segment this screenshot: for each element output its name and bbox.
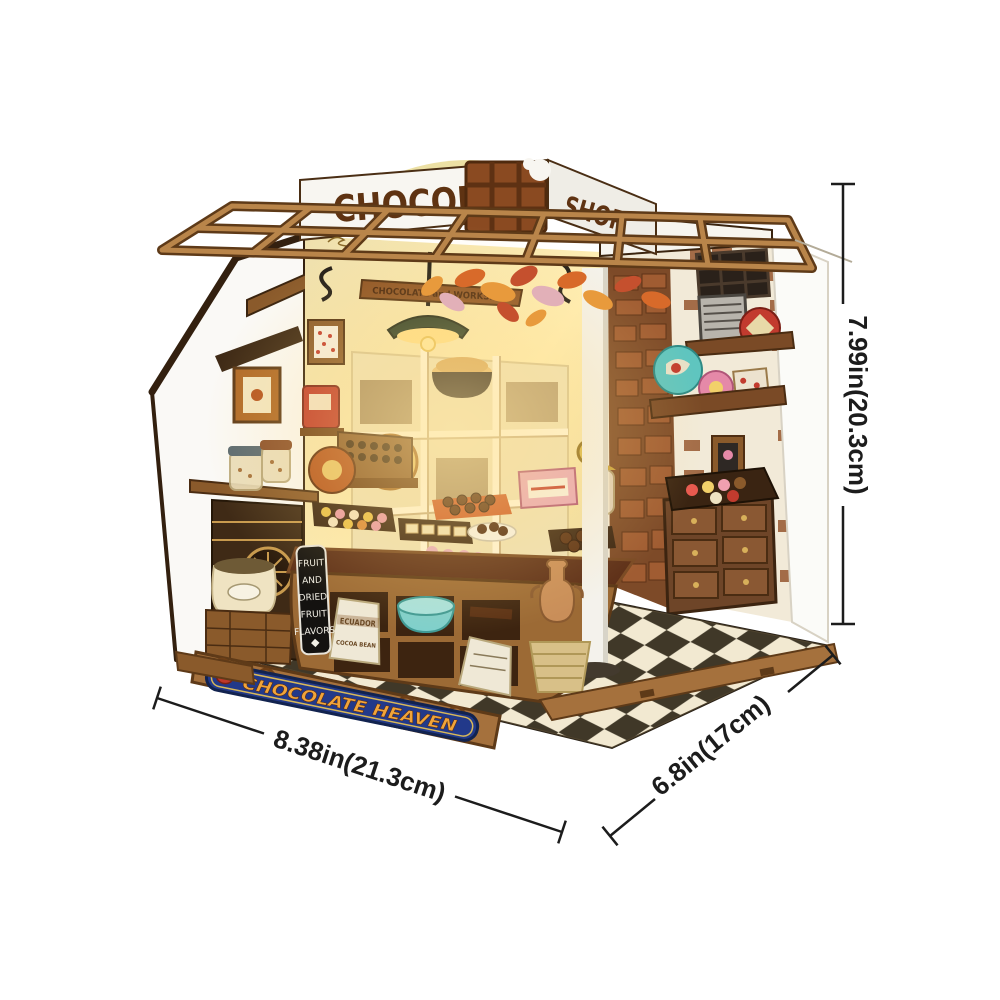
miniature-chocolate-shop: CHOCOLATE SHOP	[152, 158, 852, 748]
product-photo: CHOCOLATE SHOP	[0, 0, 1000, 1000]
height-label: 7.99in(20.3cm)	[843, 315, 873, 494]
framed-menu	[699, 295, 747, 343]
width-label: 8.38in(21.3cm)	[270, 723, 450, 808]
flavors-word-4: FRUIT	[300, 609, 327, 620]
dimension-height: 7.99in(20.3cm)	[831, 184, 873, 624]
ceramic-jar	[212, 558, 276, 612]
product-image: CHOCOLATE SHOP	[0, 0, 1000, 1000]
white-sack	[459, 637, 518, 696]
